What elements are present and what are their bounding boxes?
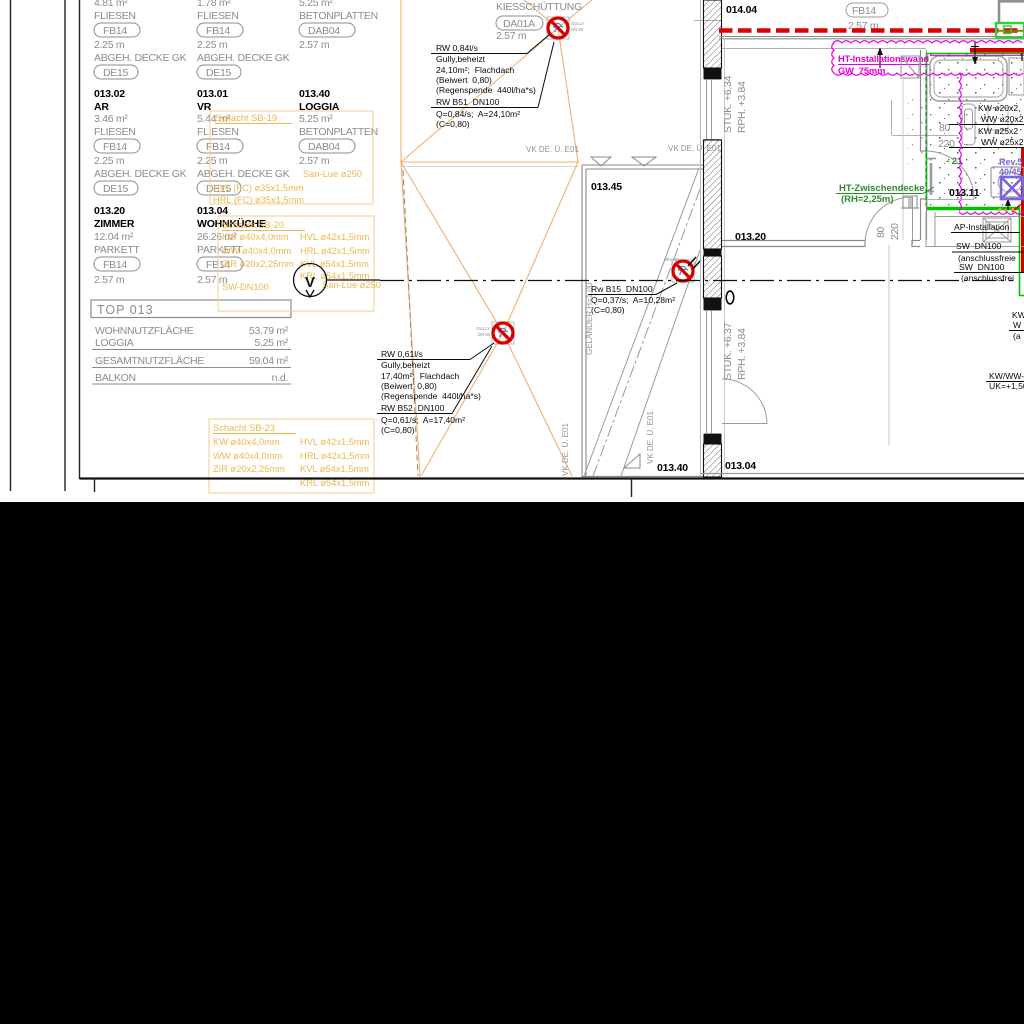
svg-text:PARKETT: PARKETT	[94, 244, 140, 256]
svg-text:53.79 m²: 53.79 m²	[249, 325, 289, 337]
svg-text:Q=0,61/s; A=17,40m²: Q=0,61/s; A=17,40m²	[381, 415, 465, 425]
svg-text:GULLY: GULLY	[571, 21, 585, 26]
svg-text:BETONPLATTEN: BETONPLATTEN	[299, 126, 378, 138]
svg-text:Schacht SB-19: Schacht SB-19	[215, 113, 277, 123]
svg-text:KVL ø54x1,5mm: KVL ø54x1,5mm	[300, 464, 369, 474]
svg-text:2.57 m: 2.57 m	[299, 155, 330, 167]
svg-text:TOP 013: TOP 013	[97, 303, 154, 317]
svg-text:WOHNNUTZFLÄCHE: WOHNNUTZFLÄCHE	[95, 325, 194, 337]
svg-text:HVL ø42x1,5mm: HVL ø42x1,5mm	[300, 437, 370, 447]
svg-text:(C=0,80): (C=0,80)	[436, 119, 470, 129]
svg-text:SW DN100: SW DN100	[959, 262, 1005, 272]
svg-text:KW ø40x4,0mm: KW ø40x4,0mm	[222, 232, 289, 242]
svg-text:KW: KW	[1012, 310, 1024, 320]
svg-text:014.04: 014.04	[726, 4, 757, 16]
svg-text:DN 80: DN 80	[478, 332, 491, 337]
svg-text:GW 75mm: GW 75mm	[838, 66, 885, 76]
svg-text:220: 220	[938, 138, 955, 150]
svg-text:Schacht SB-20: Schacht SB-20	[222, 220, 284, 230]
svg-text:KW/WW-Z: KW/WW-Z	[989, 371, 1024, 381]
svg-text:FB14: FB14	[103, 259, 127, 271]
svg-text:KW ø20x2,: KW ø20x2,	[978, 103, 1021, 113]
svg-text:ABGEH. DECKE GK: ABGEH. DECKE GK	[94, 168, 187, 180]
svg-text:013.40: 013.40	[299, 88, 330, 100]
svg-text:DE15: DE15	[206, 67, 232, 79]
svg-text:FLIESEN: FLIESEN	[94, 10, 136, 22]
svg-text:FLIESEN: FLIESEN	[94, 126, 136, 138]
svg-text:ABGEH. DECKE GK: ABGEH. DECKE GK	[197, 52, 290, 64]
svg-text:013.20: 013.20	[735, 231, 766, 243]
svg-text:STUK. +6.34: STUK. +6.34	[722, 75, 734, 133]
svg-text:013.02: 013.02	[94, 88, 125, 100]
svg-text:VK DE. Ü. E01: VK DE. Ü. E01	[646, 411, 655, 464]
svg-text:Q=0,84/s; A=24,10m²: Q=0,84/s; A=24,10m²	[436, 109, 520, 119]
svg-text:STUK. +6.37: STUK. +6.37	[722, 322, 734, 380]
svg-text:RPH. +3.84: RPH. +3.84	[736, 81, 748, 133]
svg-text:5.25 m²: 5.25 m²	[255, 337, 289, 349]
svg-text:San-Lue ø250: San-Lue ø250	[322, 280, 381, 290]
svg-text:Rev.5: Rev.5	[999, 157, 1022, 167]
svg-text:5.25 m²: 5.25 m²	[299, 0, 333, 9]
svg-text:80: 80	[939, 122, 951, 134]
svg-text:LOGGIA: LOGGIA	[95, 337, 134, 349]
svg-text:HRL ø42x1,5mm: HRL ø42x1,5mm	[300, 246, 370, 256]
svg-text:DE15: DE15	[103, 67, 129, 79]
svg-text:San-Lue ø250: San-Lue ø250	[303, 169, 362, 179]
svg-text:220: 220	[889, 223, 901, 240]
svg-text:RW 0,84l/s: RW 0,84l/s	[436, 43, 478, 53]
svg-text:1.78 m²: 1.78 m²	[197, 0, 231, 9]
svg-text:013.20: 013.20	[94, 205, 125, 217]
svg-text:n.d.: n.d.	[272, 372, 288, 384]
svg-text:(C=0,80): (C=0,80)	[381, 425, 415, 435]
svg-text:2.25 m: 2.25 m	[197, 39, 228, 51]
svg-text:ZIR ø20x2,25mm: ZIR ø20x2,25mm	[222, 259, 294, 269]
svg-text:V: V	[305, 274, 315, 291]
svg-text:FB14: FB14	[103, 25, 127, 37]
svg-text:SW DN100: SW DN100	[956, 241, 1002, 251]
svg-text:2.25 m: 2.25 m	[94, 39, 125, 51]
svg-text:FLIESEN: FLIESEN	[197, 126, 239, 138]
svg-text:ABGEH. DECKE GK: ABGEH. DECKE GK	[94, 52, 187, 64]
svg-text:(C=0,80): (C=0,80)	[591, 305, 625, 315]
svg-text:FB14: FB14	[206, 25, 230, 37]
svg-text:24,10m²; Flachdach: 24,10m²; Flachdach	[436, 65, 515, 75]
svg-text:FLIESEN: FLIESEN	[197, 10, 239, 22]
svg-text:DN 80: DN 80	[571, 27, 584, 32]
svg-text:KW ø40x4,0mm: KW ø40x4,0mm	[213, 437, 280, 447]
svg-text:WW ø20x2: WW ø20x2	[981, 114, 1024, 124]
svg-text:2.57 m: 2.57 m	[299, 39, 330, 51]
svg-text:5.25 m²: 5.25 m²	[299, 113, 333, 125]
svg-text:HVL (FC) ø35x1,5mm: HVL (FC) ø35x1,5mm	[213, 183, 304, 193]
svg-text:(Regenspende 440l/ha*s): (Regenspende 440l/ha*s)	[436, 85, 536, 95]
svg-text:80: 80	[875, 226, 887, 238]
svg-text:Rw B15 DN100: Rw B15 DN100	[591, 284, 653, 294]
svg-text:RW B51 DN100: RW B51 DN100	[436, 97, 500, 107]
svg-text:RW 0,61l/s: RW 0,61l/s	[381, 349, 423, 359]
svg-text:Q=0,37/s; A=10,28m²: Q=0,37/s; A=10,28m²	[591, 295, 675, 305]
svg-text:WW ø40x4,0mm: WW ø40x4,0mm	[213, 451, 282, 461]
svg-text:(a: (a	[1013, 331, 1021, 341]
svg-text:Gully,beheizt: Gully,beheizt	[436, 54, 486, 64]
svg-text:WW ø25x2: WW ø25x2	[981, 137, 1024, 147]
svg-text:UK=+1,50 F: UK=+1,50 F	[989, 381, 1024, 391]
svg-text:3.46 m²: 3.46 m²	[94, 113, 128, 125]
svg-text:2.57 m: 2.57 m	[94, 274, 125, 286]
svg-text:DAB04: DAB04	[308, 25, 340, 37]
svg-text:BETONPLATTEN: BETONPLATTEN	[299, 10, 378, 22]
svg-text:ZIMMER: ZIMMER	[94, 218, 135, 230]
svg-text:HT-Zwischendecke: HT-Zwischendecke	[839, 183, 925, 194]
svg-text:GESAMTNUTZFLÄCHE: GESAMTNUTZFLÄCHE	[95, 355, 204, 367]
svg-text:RPH. +3.84: RPH. +3.84	[736, 328, 748, 380]
svg-text:FB14: FB14	[852, 5, 876, 17]
svg-text:VK DE. Ü. E01: VK DE. Ü. E01	[561, 423, 570, 476]
svg-text:4.81 m²: 4.81 m²	[94, 0, 128, 9]
svg-text:013.01: 013.01	[197, 88, 228, 100]
svg-text:BRAUN: BRAUN	[664, 257, 679, 262]
svg-text:GULLY: GULLY	[476, 326, 490, 331]
svg-text:FB14: FB14	[103, 141, 127, 153]
svg-text:HVL ø42x1,5mm: HVL ø42x1,5mm	[300, 232, 370, 242]
svg-text:013.04: 013.04	[725, 460, 756, 472]
svg-text:SW-DN100: SW-DN100	[222, 282, 269, 292]
svg-text:(RH=2,25m): (RH=2,25m)	[841, 194, 894, 205]
svg-text:40/45: 40/45	[999, 167, 1022, 177]
svg-text:(anschlussfrei: (anschlussfrei	[961, 273, 1014, 283]
svg-text:DAB04: DAB04	[308, 141, 340, 153]
svg-text:2.25 m: 2.25 m	[94, 155, 125, 167]
svg-text:W: W	[1013, 320, 1022, 330]
svg-text:(Beiwert 0,80): (Beiwert 0,80)	[436, 75, 492, 85]
svg-text:Gully,beheizt: Gully,beheizt	[381, 360, 431, 370]
svg-text:2.57 m: 2.57 m	[496, 30, 527, 42]
svg-text:2.25 m: 2.25 m	[197, 155, 228, 167]
svg-text:Schacht SB-23: Schacht SB-23	[213, 423, 275, 433]
svg-text:WW ø40x4,0mm: WW ø40x4,0mm	[222, 246, 291, 256]
svg-text:DE15: DE15	[103, 183, 129, 195]
svg-text:013.04: 013.04	[197, 205, 228, 217]
svg-text:BALKON: BALKON	[95, 372, 136, 384]
svg-text:(Beiwert 0,80): (Beiwert 0,80)	[381, 381, 437, 391]
svg-text:12.04 m²: 12.04 m²	[94, 231, 134, 243]
svg-text:ABGEH. DECKE GK: ABGEH. DECKE GK	[197, 168, 290, 180]
svg-text:013.11: 013.11	[949, 187, 980, 199]
svg-text:013.45: 013.45	[591, 181, 622, 193]
svg-text:AP-Installation: AP-Installation	[954, 222, 1010, 232]
svg-text:DA01A: DA01A	[503, 18, 535, 30]
svg-text:VK DE. Ü. E01: VK DE. Ü. E01	[526, 145, 579, 154]
svg-text:RW B52 DN100: RW B52 DN100	[381, 403, 445, 413]
svg-text:ZIR ø20x2,25mm: ZIR ø20x2,25mm	[213, 464, 285, 474]
svg-text:013.40: 013.40	[657, 462, 688, 474]
svg-text:17,40m²; Flachdach: 17,40m²; Flachdach	[381, 371, 460, 381]
svg-text:(Regenspende 440l/ha*s): (Regenspende 440l/ha*s)	[381, 391, 481, 401]
svg-text:HRL ø42x1,5mm: HRL ø42x1,5mm	[300, 451, 370, 461]
svg-text:59.04 m²: 59.04 m²	[249, 355, 289, 367]
svg-text:AR: AR	[94, 101, 109, 113]
svg-text:KW ø25x2: KW ø25x2	[978, 126, 1018, 136]
svg-text:KIESSCHÜTTUNG: KIESSCHÜTTUNG	[496, 1, 582, 13]
svg-text:HRL (FC) ø35x1,5mm: HRL (FC) ø35x1,5mm	[213, 195, 304, 205]
